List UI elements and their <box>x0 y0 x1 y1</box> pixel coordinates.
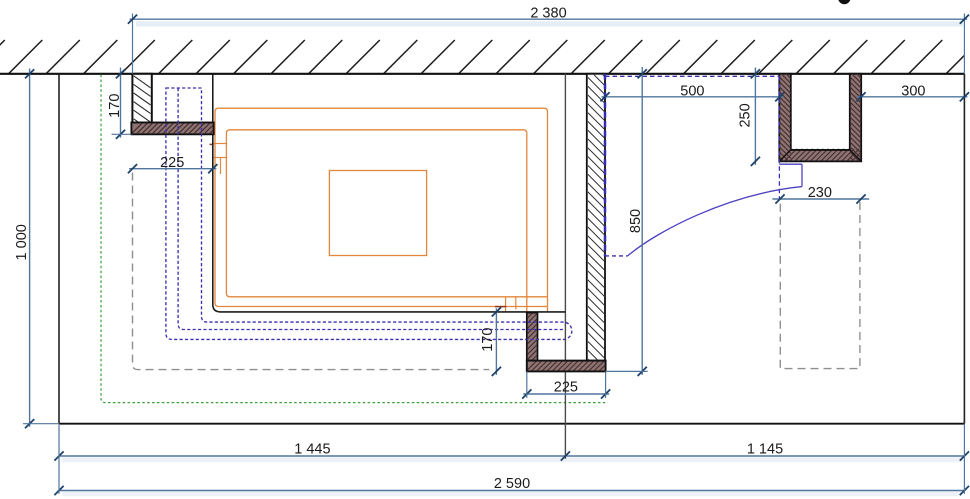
svg-text:225: 225 <box>554 380 578 396</box>
svg-text:225: 225 <box>160 155 184 171</box>
svg-text:850: 850 <box>628 209 644 233</box>
svg-text:250: 250 <box>738 103 754 127</box>
svg-text:2 380: 2 380 <box>530 6 566 22</box>
svg-text:1 145: 1 145 <box>747 441 783 457</box>
svg-text:1 000: 1 000 <box>14 224 30 260</box>
svg-text:230: 230 <box>808 185 832 201</box>
svg-text:2 590: 2 590 <box>494 476 530 492</box>
svg-text:1 445: 1 445 <box>294 441 330 457</box>
svg-text:170: 170 <box>107 94 123 118</box>
svg-text:300: 300 <box>901 83 925 99</box>
svg-text:170: 170 <box>480 328 496 352</box>
svg-text:500: 500 <box>680 83 704 99</box>
